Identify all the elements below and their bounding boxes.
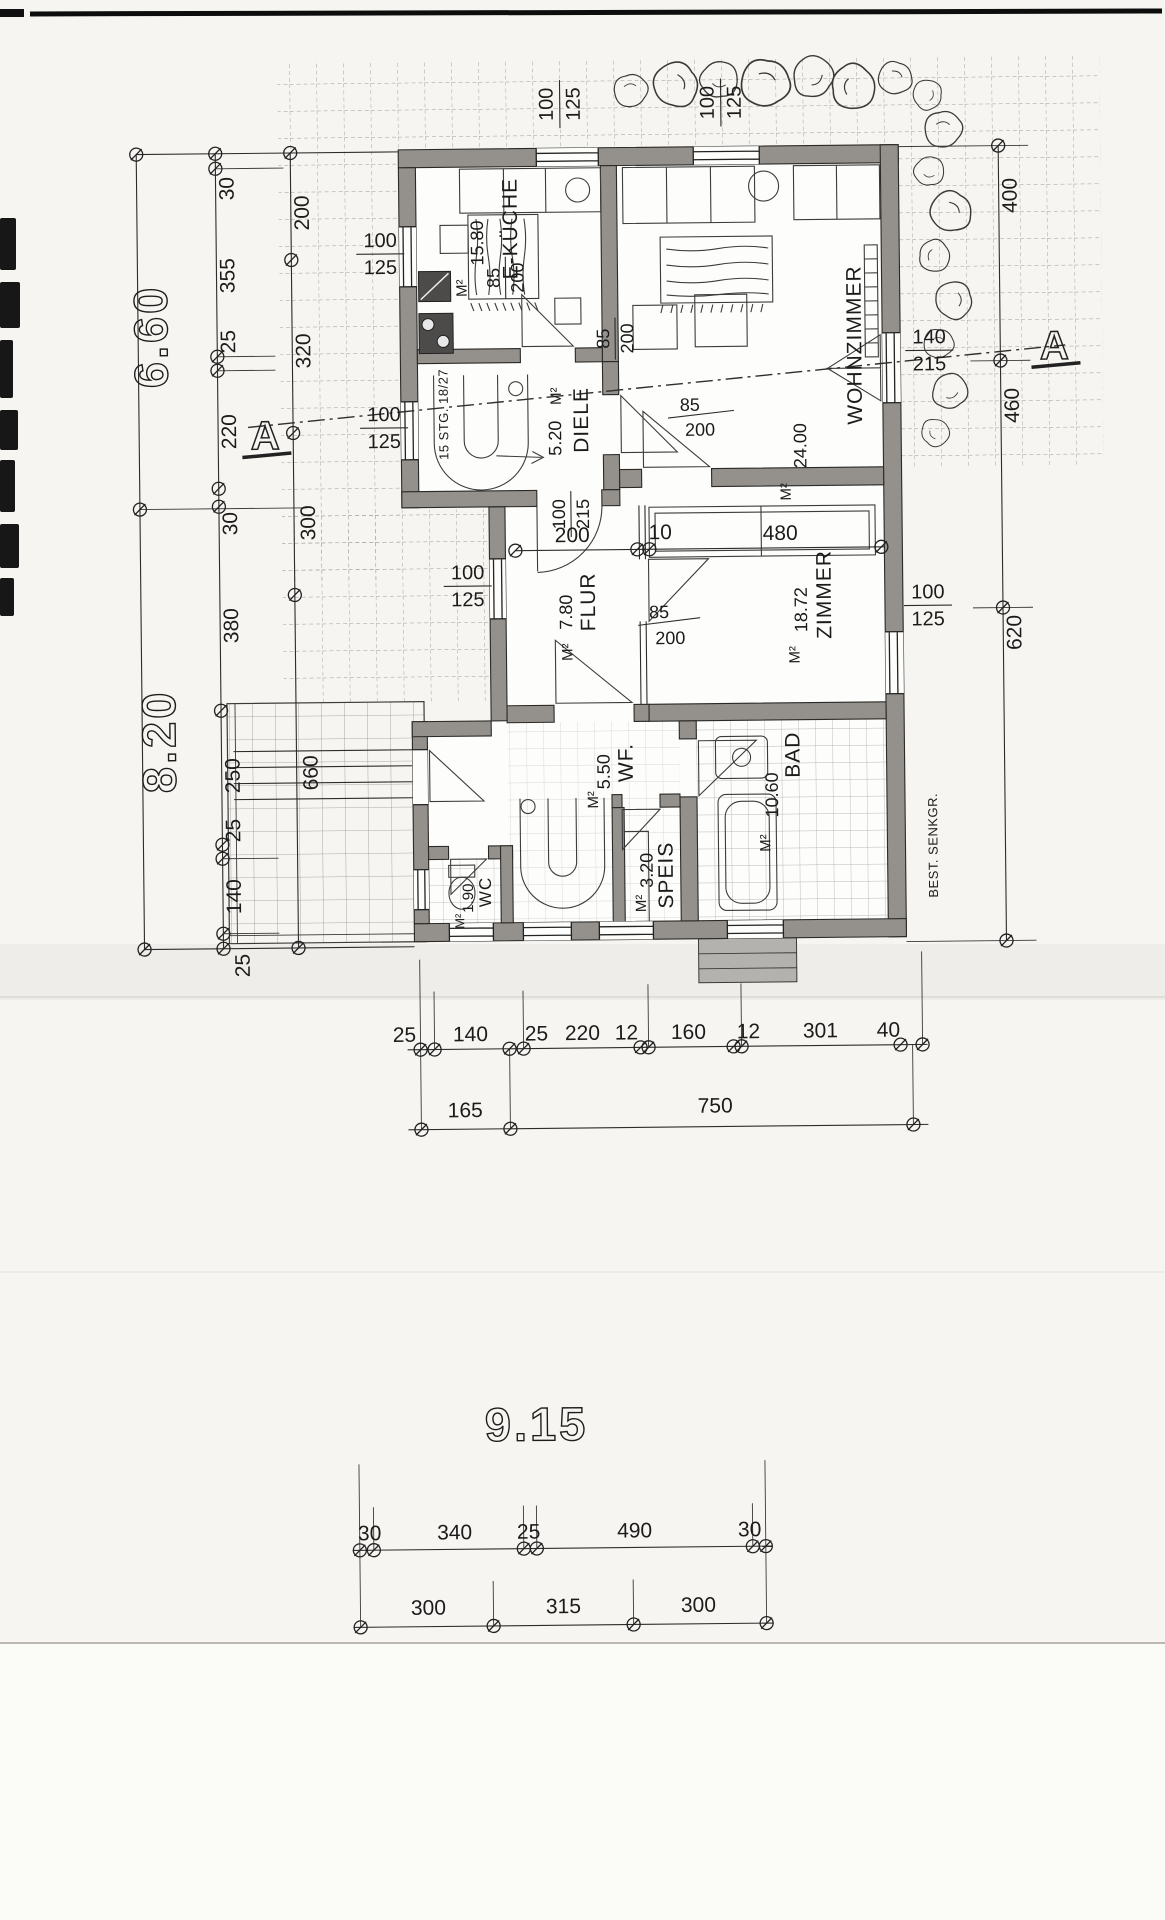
svg-text:85: 85 (680, 395, 700, 415)
svg-text:25: 25 (232, 954, 255, 978)
svg-text:660: 660 (300, 755, 323, 790)
stair-note: 15 STG. 18/27 (435, 369, 451, 460)
section-marker-a-left: A (250, 414, 279, 458)
svg-text:140: 140 (223, 879, 246, 914)
svg-text:M²: M² (585, 791, 602, 809)
svg-text:100: 100 (363, 230, 397, 252)
svg-text:125: 125 (367, 431, 401, 453)
total-height-upper: 6.60 (124, 284, 178, 388)
svg-text:12: 12 (737, 1020, 761, 1043)
site-total-width: 9.15 (485, 1397, 589, 1451)
svg-text:12: 12 (615, 1021, 639, 1044)
svg-text:100: 100 (451, 562, 485, 584)
svg-text:30: 30 (738, 1518, 762, 1541)
svg-text:5.50: 5.50 (594, 754, 614, 789)
svg-text:220: 220 (218, 414, 241, 449)
svg-text:125: 125 (451, 589, 485, 611)
svg-text:85: 85 (593, 329, 613, 349)
svg-text:125: 125 (724, 86, 746, 120)
svg-text:220: 220 (565, 1022, 600, 1045)
floor-plan-drawing: A A E-KÜCHE 15.80 M² WOHNZIMMER 24.00 M²… (0, 0, 1165, 1920)
svg-text:WOHNZIMMER: WOHNZIMMER (842, 265, 867, 425)
svg-text:480: 480 (763, 522, 798, 545)
svg-text:WF.: WF. (614, 743, 637, 782)
svg-text:200: 200 (507, 262, 527, 292)
south-window-stair (523, 922, 571, 941)
scanned-floor-plan-page: A A E-KÜCHE 15.80 M² WOHNZIMMER 24.00 M²… (0, 0, 1165, 1920)
cesspit-note: BEST. SENKGR. (925, 793, 941, 898)
svg-text:340: 340 (437, 1521, 472, 1544)
svg-text:215: 215 (913, 353, 947, 375)
svg-text:200: 200 (617, 323, 637, 353)
svg-text:24.00: 24.00 (790, 423, 810, 468)
svg-text:1.90: 1.90 (460, 883, 477, 912)
svg-text:165: 165 (448, 1099, 483, 1122)
svg-text:200: 200 (685, 420, 715, 440)
top-window-kueche (536, 148, 598, 167)
svg-text:WC: WC (476, 877, 495, 908)
site-dimension-chains: 9.15 30 340 25 490 30 300 315 300 (351, 1395, 773, 1634)
svg-text:10: 10 (648, 521, 672, 544)
svg-text:125: 125 (563, 87, 585, 121)
svg-text:400: 400 (999, 178, 1022, 213)
svg-text:750: 750 (698, 1094, 733, 1117)
svg-text:125: 125 (364, 257, 398, 279)
svg-text:DIELE: DIELE (570, 387, 594, 453)
svg-text:100: 100 (697, 86, 719, 120)
svg-text:M²: M² (452, 913, 467, 929)
svg-text:460: 460 (1001, 388, 1024, 423)
svg-text:M²: M² (786, 646, 803, 664)
svg-text:200: 200 (655, 628, 685, 648)
west-window-kueche (399, 227, 417, 287)
svg-text:140: 140 (912, 326, 946, 348)
svg-text:30: 30 (219, 512, 242, 536)
svg-text:620: 620 (1003, 615, 1026, 650)
south-window-bad (727, 920, 783, 939)
svg-text:315: 315 (546, 1595, 581, 1618)
total-height-lower: 8.20 (132, 689, 186, 793)
svg-text:M²: M² (559, 643, 576, 661)
west-window-diele (401, 402, 419, 460)
svg-text:300: 300 (411, 1596, 446, 1619)
label-east-window-zimmer: 100 125 (904, 581, 953, 630)
svg-text:25: 25 (525, 1022, 549, 1045)
svg-text:M²: M² (548, 387, 565, 405)
left-edge-cutoff-text (0, 218, 20, 616)
west-window-flur (489, 559, 506, 619)
svg-text:M²: M² (633, 895, 650, 913)
section-marker-a-right: A (1040, 324, 1069, 368)
top-window-wohnzimmer (693, 146, 759, 165)
svg-text:300: 300 (681, 1594, 716, 1617)
svg-text:SPEIS: SPEIS (654, 842, 678, 909)
svg-text:355: 355 (216, 258, 239, 293)
svg-text:85: 85 (649, 602, 669, 622)
svg-text:15.80: 15.80 (467, 220, 487, 265)
svg-text:5.20: 5.20 (545, 421, 565, 456)
svg-text:30: 30 (358, 1522, 382, 1545)
svg-text:200: 200 (291, 195, 314, 230)
west-window-wc (414, 870, 429, 910)
svg-text:490: 490 (617, 1519, 652, 1542)
svg-text:380: 380 (220, 608, 243, 643)
entry-terrace (227, 702, 427, 944)
south-window-speis (599, 921, 653, 940)
svg-text:25: 25 (222, 819, 245, 843)
east-window-zimmer (885, 632, 904, 694)
svg-text:40: 40 (877, 1019, 901, 1042)
svg-text:FLUR: FLUR (577, 572, 601, 631)
svg-text:25: 25 (517, 1520, 541, 1543)
svg-text:250: 250 (222, 758, 245, 793)
svg-text:125: 125 (911, 608, 945, 630)
svg-text:7.80: 7.80 (556, 595, 576, 630)
svg-text:30: 30 (215, 177, 238, 201)
svg-text:18.72: 18.72 (791, 587, 811, 632)
svg-text:85: 85 (483, 268, 503, 288)
svg-text:100: 100 (367, 404, 401, 426)
rear-terrace (698, 938, 796, 983)
svg-text:140: 140 (453, 1023, 488, 1046)
svg-text:25: 25 (393, 1024, 417, 1047)
svg-text:100: 100 (536, 88, 558, 122)
svg-text:ZIMMER: ZIMMER (812, 550, 836, 639)
svg-text:BAD: BAD (781, 732, 804, 778)
svg-text:M²: M² (454, 279, 471, 297)
svg-text:320: 320 (292, 333, 315, 368)
svg-text:25: 25 (217, 330, 240, 354)
svg-text:200: 200 (555, 524, 590, 547)
svg-text:100: 100 (911, 581, 945, 603)
svg-text:M²: M² (757, 834, 774, 852)
svg-text:3.20: 3.20 (637, 853, 657, 888)
entry-door-opening (412, 750, 428, 805)
svg-text:301: 301 (803, 1019, 838, 1042)
svg-text:300: 300 (297, 505, 320, 540)
svg-text:10.60: 10.60 (762, 772, 782, 817)
svg-text:160: 160 (671, 1021, 706, 1044)
svg-text:M²: M² (778, 483, 795, 501)
